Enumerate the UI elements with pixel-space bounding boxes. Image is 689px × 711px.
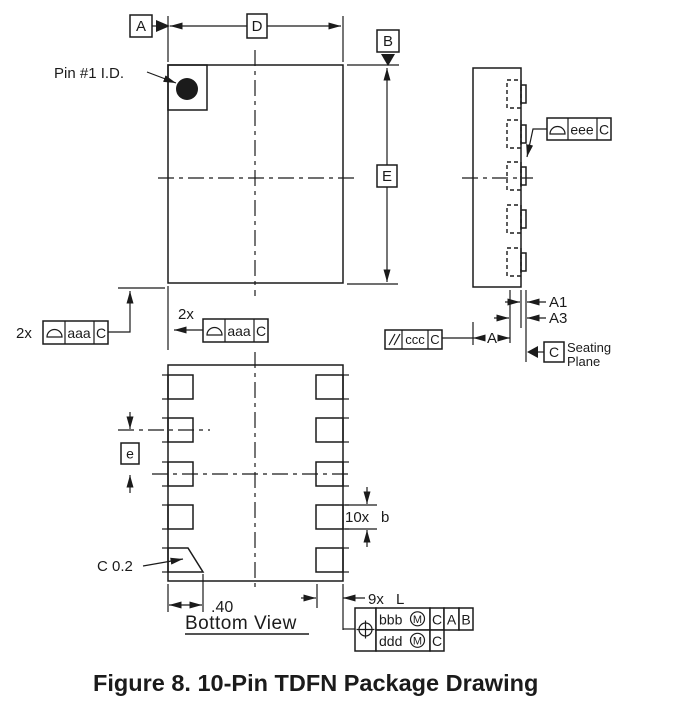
fcf-ccc-datum: C bbox=[430, 332, 439, 347]
fcf-aaa-mid-tol: aaa bbox=[227, 323, 251, 339]
mult-2x-left: 2x bbox=[16, 325, 32, 342]
dim-b-label: b bbox=[381, 509, 389, 526]
datum-B-label: B bbox=[383, 33, 393, 50]
dim-E: E bbox=[377, 68, 397, 282]
drawing-canvas: D A B E Pin #1 I.D. 2x bbox=[0, 0, 689, 711]
dim-A1-label: A1 bbox=[549, 294, 567, 311]
datum-A: A bbox=[130, 15, 170, 37]
chamfered-pad bbox=[168, 548, 203, 572]
datum-A-label: A bbox=[136, 18, 146, 35]
figure-caption: Figure 8. 10-Pin TDFN Package Drawing bbox=[93, 670, 538, 696]
dim-D: D bbox=[170, 14, 341, 38]
mult-2x-mid: 2x bbox=[178, 306, 194, 323]
dim-D-label: D bbox=[252, 18, 263, 35]
bottom-view-label: Bottom View bbox=[185, 613, 297, 634]
fcf-pos-row2-d1: C bbox=[432, 633, 442, 649]
fcf-pos-row1-mod: M bbox=[413, 614, 422, 626]
pin1-label: Pin #1 I.D. bbox=[54, 65, 124, 82]
dim-A1: A1 bbox=[505, 294, 567, 311]
seating-plane-label-2: Plane bbox=[567, 354, 600, 369]
top-view: D A B E Pin #1 I.D. 2x bbox=[16, 14, 399, 350]
fcf-eee-datum: C bbox=[599, 122, 609, 138]
fcf-pos-row1-d3: B bbox=[461, 612, 470, 628]
fcf-pos-row1-d2: A bbox=[447, 612, 457, 628]
dim-A: A bbox=[473, 330, 510, 347]
fcf-eee-tol: eee bbox=[570, 122, 594, 138]
fcf-pos-row1-d1: C bbox=[432, 612, 442, 628]
fcf-pos-row2-tol: ddd bbox=[379, 633, 402, 649]
fcf-position: bbb M C A B ddd M C bbox=[343, 608, 473, 651]
datum-C-seating: C Seating Plane bbox=[527, 340, 611, 369]
dim-A3-label: A3 bbox=[549, 310, 567, 327]
fcf-eee: eee C bbox=[527, 118, 611, 157]
lead-count-b: 10x bbox=[345, 509, 370, 526]
dim-b: 10x b bbox=[345, 487, 389, 547]
fcf-pos-row2-mod: M bbox=[413, 636, 422, 648]
lead-count-l: 9x bbox=[368, 591, 384, 608]
fcf-aaa-left-datum: C bbox=[96, 325, 106, 341]
datum-C-label: C bbox=[549, 344, 559, 360]
dim-A3: A3 bbox=[494, 310, 567, 327]
datum-arrow-icon bbox=[527, 346, 538, 358]
fcf-aaa-left-tol: aaa bbox=[67, 325, 91, 341]
fcf-pos-row1-tol: bbb bbox=[379, 612, 403, 628]
fcf-ccc: ccc C bbox=[385, 330, 473, 349]
chamfer-label: C 0.2 bbox=[97, 558, 133, 575]
dim-A-label: A bbox=[487, 330, 497, 347]
tdfn-package-drawing: D A B E Pin #1 I.D. 2x bbox=[0, 0, 689, 711]
fcf-ccc-tol: ccc bbox=[405, 332, 425, 347]
fcf-aaa-left: 2x aaa C bbox=[16, 291, 130, 344]
dim-E-label: E bbox=[382, 168, 392, 185]
fcf-aaa-mid-datum: C bbox=[256, 323, 266, 339]
dim-L-label: L bbox=[396, 591, 404, 608]
bottom-view: e 10x b .40 C 0.2 9x bbox=[97, 352, 473, 651]
seating-plane-label-1: Seating bbox=[567, 340, 611, 355]
fcf-aaa-mid: 2x aaa C bbox=[174, 306, 268, 342]
pin1-id-dot-icon bbox=[176, 78, 198, 100]
dim-e-label: e bbox=[126, 446, 134, 462]
bottom-view-title: Bottom View bbox=[185, 613, 309, 634]
datum-B: B bbox=[377, 30, 399, 66]
dim-e-pitch: e bbox=[121, 412, 139, 493]
datum-arrow-icon bbox=[381, 54, 395, 66]
side-view: eee C A1 A3 A bbox=[385, 68, 611, 369]
